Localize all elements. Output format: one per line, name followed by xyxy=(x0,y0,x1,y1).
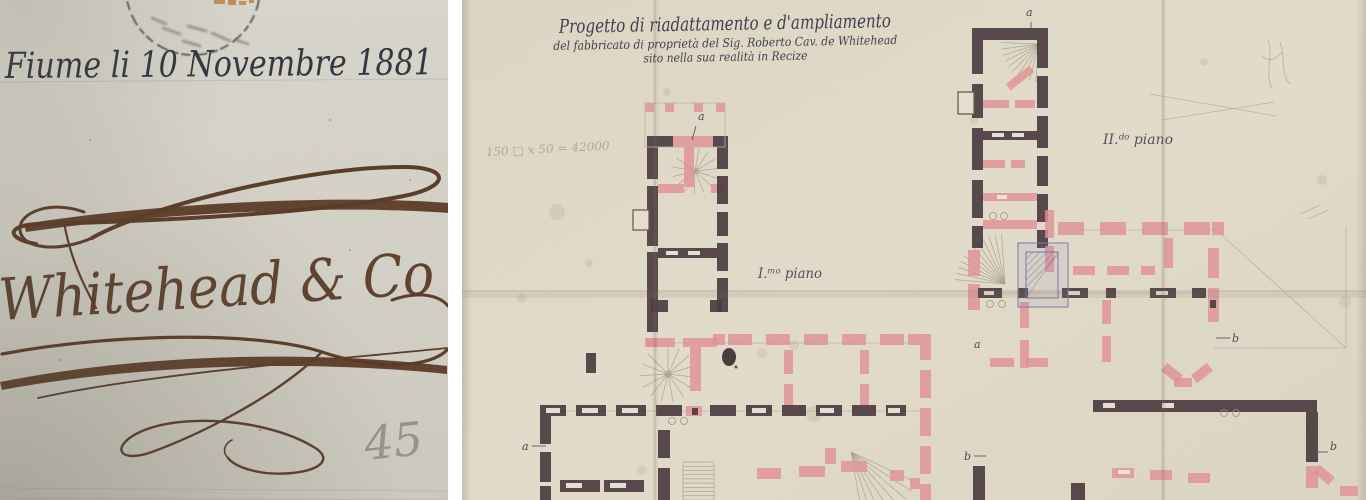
floorplan-canvas: aaaabbb Progetto di riadattamento e d'am… xyxy=(462,0,1366,500)
panel-divider xyxy=(448,0,462,500)
floorplan-photo: aaaabbb Progetto di riadattamento e d'am… xyxy=(462,0,1366,500)
letter-photo-canvas: Fiume li 10 Novembre 1881 Whitehead & Co… xyxy=(0,0,448,500)
paper-grain xyxy=(0,0,448,500)
archival-photo-composite: Fiume li 10 Novembre 1881 Whitehead & Co… xyxy=(0,0,1366,500)
letter-photo: Fiume li 10 Novembre 1881 Whitehead & Co… xyxy=(0,0,448,500)
paper-grain xyxy=(462,0,1366,500)
